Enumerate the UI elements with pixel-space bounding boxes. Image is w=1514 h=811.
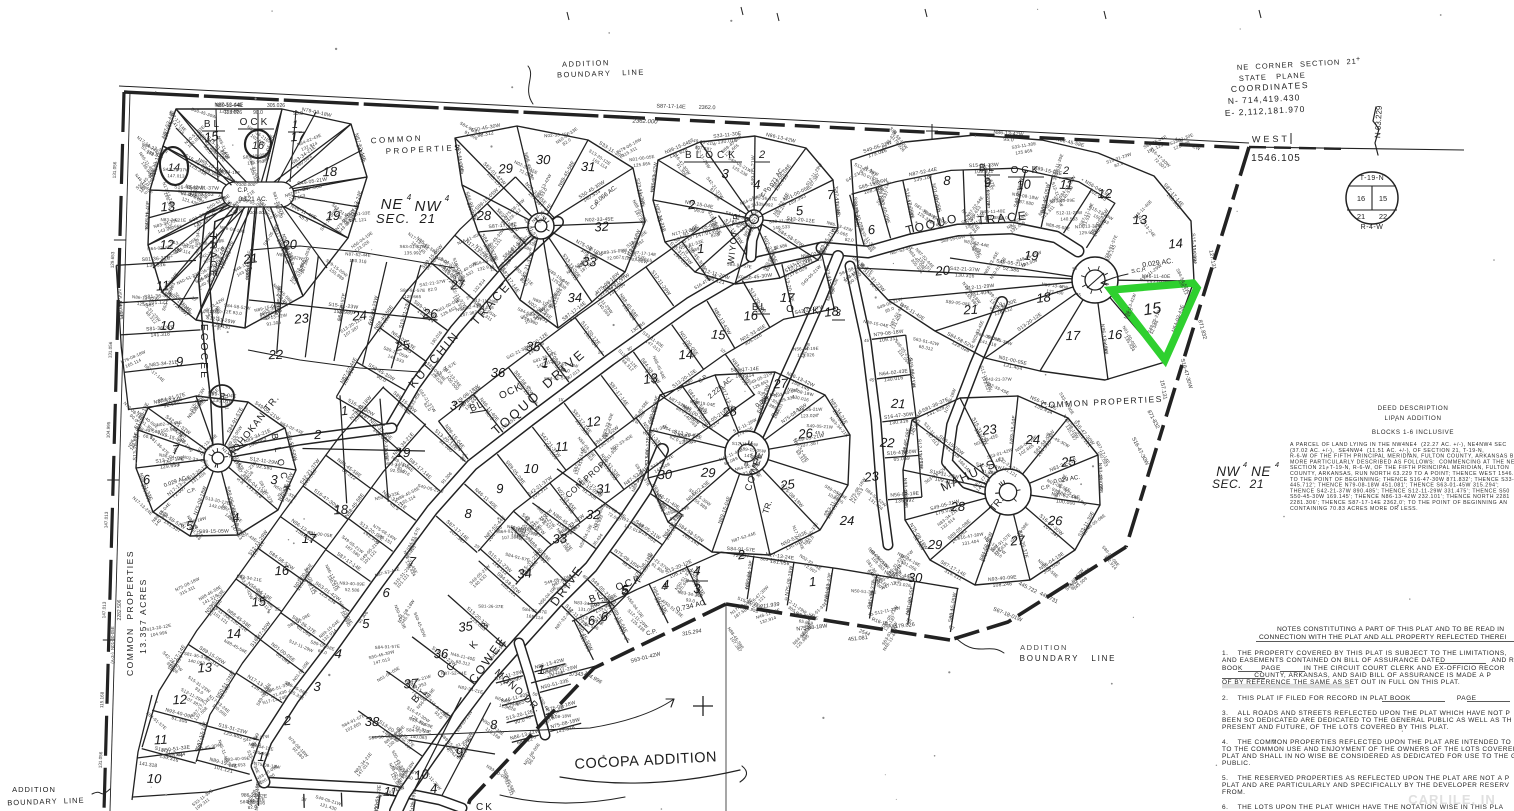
svg-text:R-4-W: R-4-W bbox=[1361, 224, 1384, 231]
svg-text:123.026: 123.026 bbox=[797, 352, 815, 358]
svg-text:35: 35 bbox=[457, 618, 474, 635]
svg-text:T-19-N: T-19-N bbox=[1360, 175, 1384, 182]
svg-text:30: 30 bbox=[536, 152, 552, 167]
svg-text:15: 15 bbox=[1379, 194, 1387, 203]
svg-text:130.316: 130.316 bbox=[955, 273, 975, 280]
svg-text:CONNECTION WITH THE PLAT AND A: CONNECTION WITH THE PLAT AND ALL PROPERT… bbox=[1259, 634, 1507, 641]
svg-text:5: 5 bbox=[621, 585, 627, 596]
svg-text:25': 25' bbox=[462, 453, 468, 459]
svg-text:36: 36 bbox=[434, 646, 449, 661]
svg-text:131.056: 131.056 bbox=[112, 161, 118, 178]
svg-text:4: 4 bbox=[407, 193, 412, 202]
svg-text:3: 3 bbox=[721, 166, 730, 181]
svg-text:+: + bbox=[1356, 56, 1360, 63]
svg-text:29: 29 bbox=[700, 465, 716, 481]
svg-text:CK: CK bbox=[476, 802, 494, 811]
svg-text:FROM.: FROM. bbox=[1222, 789, 1245, 796]
svg-text:28: 28 bbox=[720, 403, 738, 420]
svg-text:21: 21 bbox=[890, 396, 906, 412]
svg-text:18: 18 bbox=[322, 164, 338, 179]
svg-text:45': 45' bbox=[198, 721, 205, 727]
svg-text:26: 26 bbox=[1047, 513, 1064, 529]
svg-text:36: 36 bbox=[491, 365, 506, 380]
svg-text:S42-21-37W: S42-21-37W bbox=[163, 167, 190, 173]
svg-text:16: 16 bbox=[274, 563, 290, 579]
svg-text:16: 16 bbox=[1357, 194, 1365, 203]
svg-text:104.995: 104.995 bbox=[106, 421, 112, 438]
svg-text:8: 8 bbox=[219, 392, 225, 403]
svg-text:LIPAN ADDITION: LIPAN ADDITION bbox=[1384, 415, 1441, 422]
svg-text:20: 20 bbox=[281, 237, 298, 253]
svg-text:22: 22 bbox=[1379, 212, 1387, 221]
svg-text:17: 17 bbox=[1066, 328, 1081, 343]
svg-text:131.056: 131.056 bbox=[108, 341, 114, 358]
svg-text:8: 8 bbox=[943, 173, 951, 188]
svg-text:8: 8 bbox=[464, 506, 473, 521]
svg-text:N87-52-44E: N87-52-44E bbox=[441, 670, 467, 675]
svg-text:2362.000: 2362.000 bbox=[631, 119, 658, 126]
svg-text:N 63.229: N 63.229 bbox=[1373, 105, 1384, 138]
svg-text:107.387: 107.387 bbox=[984, 215, 1002, 221]
svg-text:WEST: WEST bbox=[1252, 134, 1290, 145]
svg-text:14: 14 bbox=[678, 347, 693, 363]
svg-text:1: 1 bbox=[292, 119, 298, 131]
svg-text:10: 10 bbox=[160, 318, 176, 334]
svg-text:29: 29 bbox=[927, 537, 943, 552]
svg-text:(A-3-) N01-00-05E: (A-3-) N01-00-05E bbox=[110, 626, 115, 663]
svg-text:3. ALL ROADS AND STREETS RE: 3. ALL ROADS AND STREETS REFLECTED UPON … bbox=[1222, 710, 1510, 717]
svg-text:25: 25 bbox=[778, 476, 796, 493]
svg-text:131.056: 131.056 bbox=[1097, 474, 1104, 494]
svg-text:BOUNDARY LINE: BOUNDARY LINE bbox=[1020, 654, 1117, 663]
svg-text:147.013: 147.013 bbox=[167, 173, 185, 178]
svg-text:4: 4 bbox=[334, 646, 342, 661]
svg-text:22: 22 bbox=[267, 347, 284, 363]
svg-text:34: 34 bbox=[567, 290, 582, 306]
svg-text:N46-11-40E: N46-11-40E bbox=[980, 209, 1006, 215]
svg-text:1: 1 bbox=[808, 574, 817, 590]
svg-text:29: 29 bbox=[497, 161, 513, 177]
svg-text:O: O bbox=[786, 304, 794, 315]
svg-text:11: 11 bbox=[555, 439, 569, 455]
svg-text:21: 21 bbox=[1357, 212, 1365, 221]
svg-text:82.0: 82.0 bbox=[845, 237, 855, 243]
svg-text:45.5: 45.5 bbox=[815, 430, 825, 436]
svg-text:13: 13 bbox=[642, 370, 659, 387]
svg-text:OCK: OCK bbox=[1011, 165, 1042, 176]
svg-text:82.0: 82.0 bbox=[247, 804, 257, 810]
svg-text:52.586: 52.586 bbox=[645, 449, 652, 466]
svg-text:115.168: 115.168 bbox=[99, 691, 105, 708]
svg-text:12: 12 bbox=[1098, 186, 1114, 201]
svg-text:24: 24 bbox=[839, 513, 855, 528]
svg-text:ADDITION: ADDITION bbox=[12, 785, 56, 794]
svg-text:125.665: 125.665 bbox=[404, 294, 422, 299]
svg-text:BL: BL bbox=[752, 302, 768, 313]
svg-text:15: 15 bbox=[711, 327, 727, 343]
svg-text:4: 4 bbox=[1243, 460, 1247, 469]
svg-text:22: 22 bbox=[879, 435, 896, 451]
svg-text:305.026: 305.026 bbox=[145, 211, 152, 231]
svg-text:S84-91-57E: S84-91-57E bbox=[400, 288, 425, 293]
svg-text:ADDITION: ADDITION bbox=[1020, 643, 1068, 652]
svg-text:2282.506: 2282.506 bbox=[117, 599, 123, 620]
svg-text:2. THIS PLAT IF FILED FOR R: 2. THIS PLAT IF FILED FOR RECORD IN PLAT… bbox=[1222, 695, 1477, 702]
svg-text:18: 18 bbox=[333, 502, 349, 518]
svg-text:SEC. 21: SEC. 21 bbox=[376, 211, 436, 226]
svg-text:35': 35' bbox=[275, 607, 281, 612]
svg-text:COMMON PROPERTIES: COMMON PROPERTIES bbox=[125, 550, 135, 676]
svg-text:129.653: 129.653 bbox=[1079, 229, 1097, 235]
svg-text:2: 2 bbox=[758, 149, 765, 161]
svg-text:135.187: 135.187 bbox=[984, 189, 991, 209]
svg-text:4: 4 bbox=[753, 177, 761, 192]
svg-text:4: 4 bbox=[445, 194, 450, 203]
svg-text:50': 50' bbox=[526, 715, 532, 720]
svg-text:17: 17 bbox=[780, 290, 796, 306]
svg-text:123.026: 123.026 bbox=[801, 413, 819, 418]
svg-text:SEC. 21: SEC. 21 bbox=[1212, 477, 1264, 491]
svg-text:ECOCEE: ECOCEE bbox=[198, 324, 210, 380]
svg-text:PLAT AND SHALL IN NO WISE BE C: PLAT AND SHALL IN NO WISE BE CONSIDERED … bbox=[1222, 753, 1514, 760]
svg-text:25': 25' bbox=[598, 350, 604, 356]
svg-text:2: 2 bbox=[1062, 165, 1069, 177]
svg-text:4: 4 bbox=[661, 582, 667, 593]
svg-text:3: 3 bbox=[835, 308, 841, 319]
svg-text:35': 35' bbox=[301, 797, 308, 803]
svg-text:147.013: 147.013 bbox=[103, 511, 109, 528]
svg-text:37343: 37343 bbox=[569, 672, 583, 678]
svg-text:10: 10 bbox=[147, 771, 163, 786]
svg-text:2362.0: 2362.0 bbox=[699, 105, 716, 112]
svg-text:1: 1 bbox=[340, 403, 349, 419]
svg-text:1. THE PROPERTY COVERED BY: 1. THE PROPERTY COVERED BY THIS PLAT IS … bbox=[1222, 650, 1507, 657]
svg-text:PLAT AND ARE PARTICULARLY AND: PLAT AND ARE PARTICULARLY AND SPECIFICAL… bbox=[1222, 782, 1509, 789]
svg-text:93.0: 93.0 bbox=[293, 111, 303, 117]
svg-text:9: 9 bbox=[496, 481, 504, 496]
svg-text:90.0: 90.0 bbox=[253, 110, 263, 116]
svg-text:11: 11 bbox=[154, 732, 168, 748]
svg-text:50': 50' bbox=[737, 274, 743, 279]
svg-text:28: 28 bbox=[476, 208, 493, 223]
svg-text:35': 35' bbox=[531, 734, 537, 739]
svg-text:45': 45' bbox=[864, 338, 870, 343]
svg-text:PUBLIC.: PUBLIC. bbox=[1222, 760, 1251, 767]
svg-text:147.013: 147.013 bbox=[101, 601, 107, 618]
svg-text:5: 5 bbox=[362, 616, 371, 631]
svg-text:NOTES CONSTITUTING A PART OF T: NOTES CONSTITUTING A PART OF THIS PLAT A… bbox=[1277, 626, 1504, 633]
svg-text:135.992: 135.992 bbox=[1190, 245, 1197, 265]
svg-text:32: 32 bbox=[594, 218, 610, 234]
svg-text:65.069: 65.069 bbox=[893, 456, 910, 463]
svg-text:16: 16 bbox=[1108, 327, 1123, 342]
svg-text:25: 25 bbox=[1059, 453, 1077, 470]
svg-text:2: 2 bbox=[313, 427, 323, 442]
svg-text:S49-05-21W: S49-05-21W bbox=[796, 407, 823, 413]
svg-text:10: 10 bbox=[524, 461, 539, 476]
svg-text:CK: CK bbox=[803, 306, 821, 317]
svg-text:BLOCKS 1-6 INCLUSIVE: BLOCKS 1-6 INCLUSIVE bbox=[1372, 429, 1454, 436]
svg-text:BEEN SO DEDICATED ARE DEDICATE: BEEN SO DEDICATED ARE DEDICATED TO THE G… bbox=[1222, 717, 1512, 724]
svg-text:DEED DESCRIPTION: DEED DESCRIPTION bbox=[1378, 405, 1449, 412]
svg-text:4. THE COMMON PROPERTIES RE: 4. THE COMMON PROPERTIES REFLECTED UPON … bbox=[1222, 739, 1511, 746]
svg-text:5. THE RESERVED PROPERTIES: 5. THE RESERVED PROPERTIES AS REFLECTED … bbox=[1222, 775, 1510, 782]
svg-text:CARLILE, IN: CARLILE, IN bbox=[1408, 792, 1496, 807]
svg-text:12: 12 bbox=[585, 413, 602, 430]
svg-text:N89-15-04E: N89-15-04E bbox=[216, 103, 244, 109]
svg-text:140.533: 140.533 bbox=[1061, 216, 1079, 221]
svg-text:ADDITION: ADDITION bbox=[562, 58, 610, 69]
svg-text:20: 20 bbox=[934, 262, 951, 278]
svg-text:N56-04-19E: N56-04-19E bbox=[793, 346, 819, 352]
svg-text:PRESENT AND FUTURE, OF THE LOT: PRESENT AND FUTURE, OF THE LOTS COVERED … bbox=[1222, 724, 1449, 731]
svg-text:34: 34 bbox=[517, 565, 533, 581]
svg-text:9: 9 bbox=[176, 354, 184, 369]
svg-text:1546.105: 1546.105 bbox=[1251, 153, 1301, 164]
svg-text:BOOK PAGE IN T: BOOK PAGE IN THE CIRCUIT COURT CLERK AND… bbox=[1222, 665, 1505, 672]
svg-text:129.653: 129.653 bbox=[110, 251, 116, 268]
svg-text:S12-11-29W: S12-11-29W bbox=[1056, 210, 1083, 215]
svg-text:COUNTY, ARKANSAS, AND SAID BIL: COUNTY, ARKANSAS, AND SAID BILL OF ASSUR… bbox=[1222, 672, 1491, 679]
svg-text:13.357 ACRES: 13.357 ACRES bbox=[138, 578, 148, 654]
svg-text:3: 3 bbox=[313, 679, 321, 694]
svg-text:131.056: 131.056 bbox=[98, 751, 104, 768]
svg-text:15': 15' bbox=[558, 397, 564, 402]
svg-text:4: 4 bbox=[1275, 460, 1279, 469]
svg-text:52.586: 52.586 bbox=[345, 587, 360, 593]
svg-text:TO THE COMMON USE AND ENJOYMEN: TO THE COMMON USE AND ENJOYMENT OF THE O… bbox=[1222, 746, 1514, 753]
svg-text:123.026: 123.026 bbox=[224, 110, 242, 116]
svg-text:CONTAINING 70.83 ACRES MORE OR: CONTAINING 70.83 ACRES MORE OR LESS. bbox=[1290, 506, 1418, 512]
svg-text:305.026: 305.026 bbox=[267, 103, 285, 109]
svg-text:14: 14 bbox=[1168, 235, 1184, 251]
svg-text:OCK: OCK bbox=[240, 117, 271, 128]
svg-text:23: 23 bbox=[293, 310, 311, 327]
svg-text:30': 30' bbox=[636, 323, 643, 329]
svg-text:38: 38 bbox=[365, 714, 380, 729]
svg-text:10: 10 bbox=[1016, 176, 1033, 192]
svg-text:4: 4 bbox=[693, 563, 700, 578]
svg-text:BL: BL bbox=[204, 119, 222, 130]
svg-text:S81-36-37E: S81-36-37E bbox=[478, 603, 504, 609]
svg-text:S87-17-14E: S87-17-14E bbox=[656, 103, 686, 110]
svg-text:AND EASEMENTS CONTAINED ON BIL: AND EASEMENTS CONTAINED ON BILL OF ASSUR… bbox=[1222, 657, 1514, 664]
